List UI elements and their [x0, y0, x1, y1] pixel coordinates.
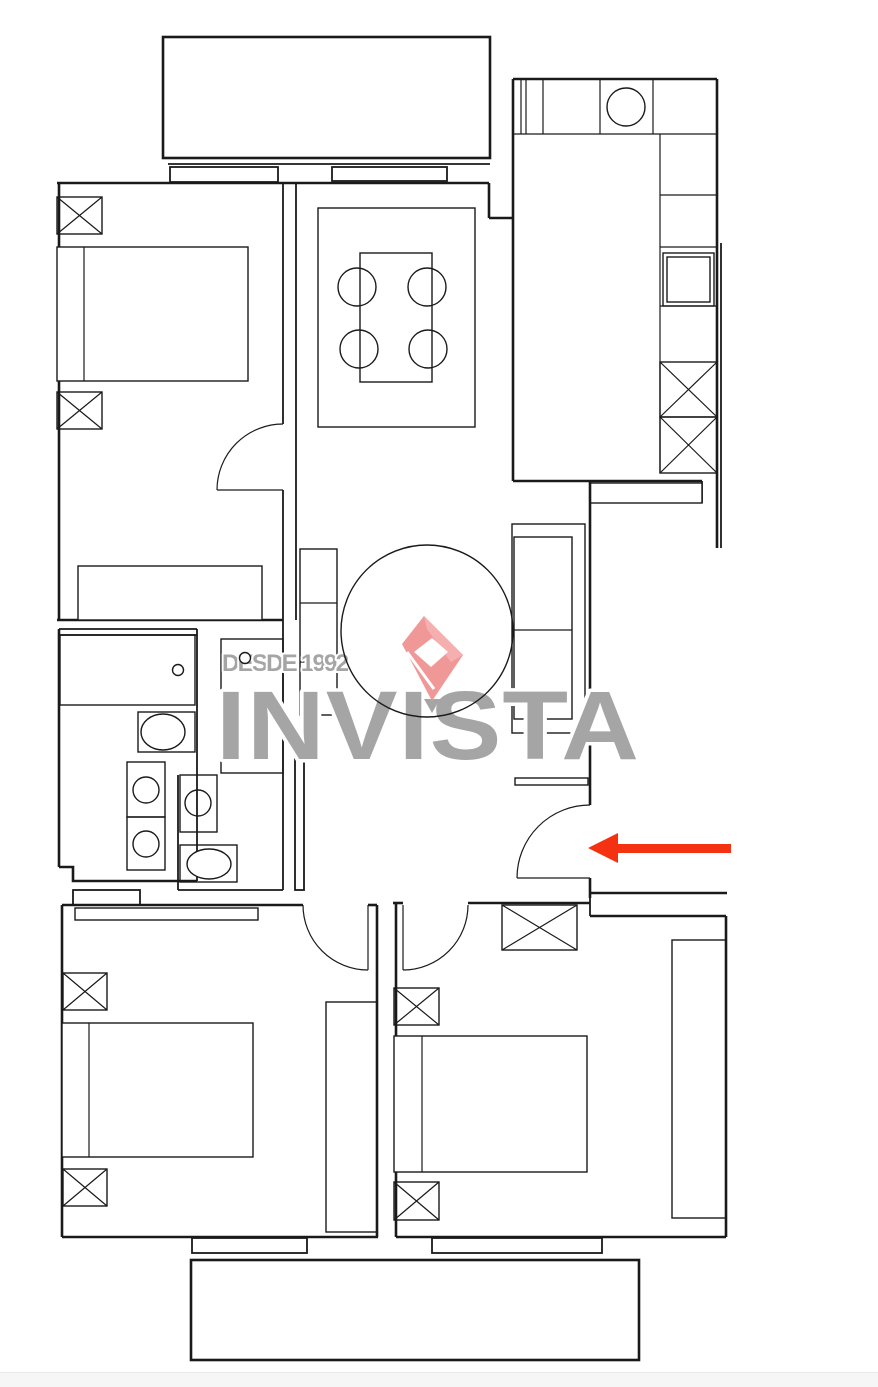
door-swing	[403, 905, 468, 970]
column-marker-x	[57, 392, 102, 429]
middle-walls	[590, 890, 727, 916]
entrance-arrow-icon	[588, 833, 731, 863]
dining-table	[360, 253, 432, 382]
door-swing	[217, 424, 283, 490]
balcony-top	[163, 37, 490, 182]
balcony-bottom	[191, 1260, 639, 1360]
watermark: DESDE 1992 INVISTA	[216, 616, 640, 780]
page-footer-strip	[0, 1373, 878, 1387]
chair	[338, 268, 376, 306]
double-bed-symbol	[62, 1023, 253, 1157]
chair	[340, 330, 378, 368]
floor-plan-drawing: DESDE 1992 INVISTA	[0, 0, 878, 1387]
sink-icon	[607, 88, 645, 126]
dining-rug	[318, 208, 475, 427]
balcony-slab	[163, 37, 490, 158]
entrance-door-swing	[517, 805, 590, 878]
column-marker-x	[57, 197, 102, 234]
door-swing	[303, 905, 368, 970]
chair	[408, 268, 446, 306]
wardrobe	[672, 940, 726, 1218]
kitchen	[513, 79, 721, 548]
double-bed-symbol	[394, 1036, 587, 1172]
fridge-icon	[663, 253, 714, 306]
bedroom-bottom-left	[62, 890, 378, 1253]
column-marker-x	[63, 1169, 107, 1206]
basin-icon	[180, 775, 217, 832]
bedroom-bottom-right	[393, 903, 726, 1253]
wall-pier	[73, 890, 140, 905]
dresser	[78, 566, 262, 620]
column-marker-x	[394, 988, 439, 1025]
kitchen-counter-run	[513, 79, 717, 473]
toilet-icon	[180, 845, 237, 882]
wardrobe	[326, 1002, 377, 1232]
window-sill	[332, 167, 447, 181]
bedroom-top-left	[57, 183, 489, 620]
radiator-shelf	[75, 908, 258, 920]
window-sill	[170, 167, 278, 182]
dining-room	[296, 183, 513, 620]
window-sill	[192, 1238, 307, 1253]
column-marker-x	[394, 1182, 439, 1220]
counter-knob	[173, 665, 184, 676]
window-sill	[432, 1238, 602, 1253]
wall	[59, 867, 197, 881]
column-marker-x	[63, 973, 107, 1010]
basin-icon	[127, 817, 165, 870]
cabinet-knob	[240, 653, 251, 664]
console-table	[590, 483, 702, 503]
toilet-icon	[138, 712, 195, 752]
double-bed-symbol	[57, 247, 248, 381]
column-marker-x	[502, 905, 577, 950]
chair	[409, 330, 447, 368]
floor-plan-page: DESDE 1992 INVISTA	[0, 0, 878, 1387]
column-marker-x	[660, 362, 717, 417]
column-marker-x	[660, 417, 717, 473]
basin-icon	[127, 762, 165, 817]
